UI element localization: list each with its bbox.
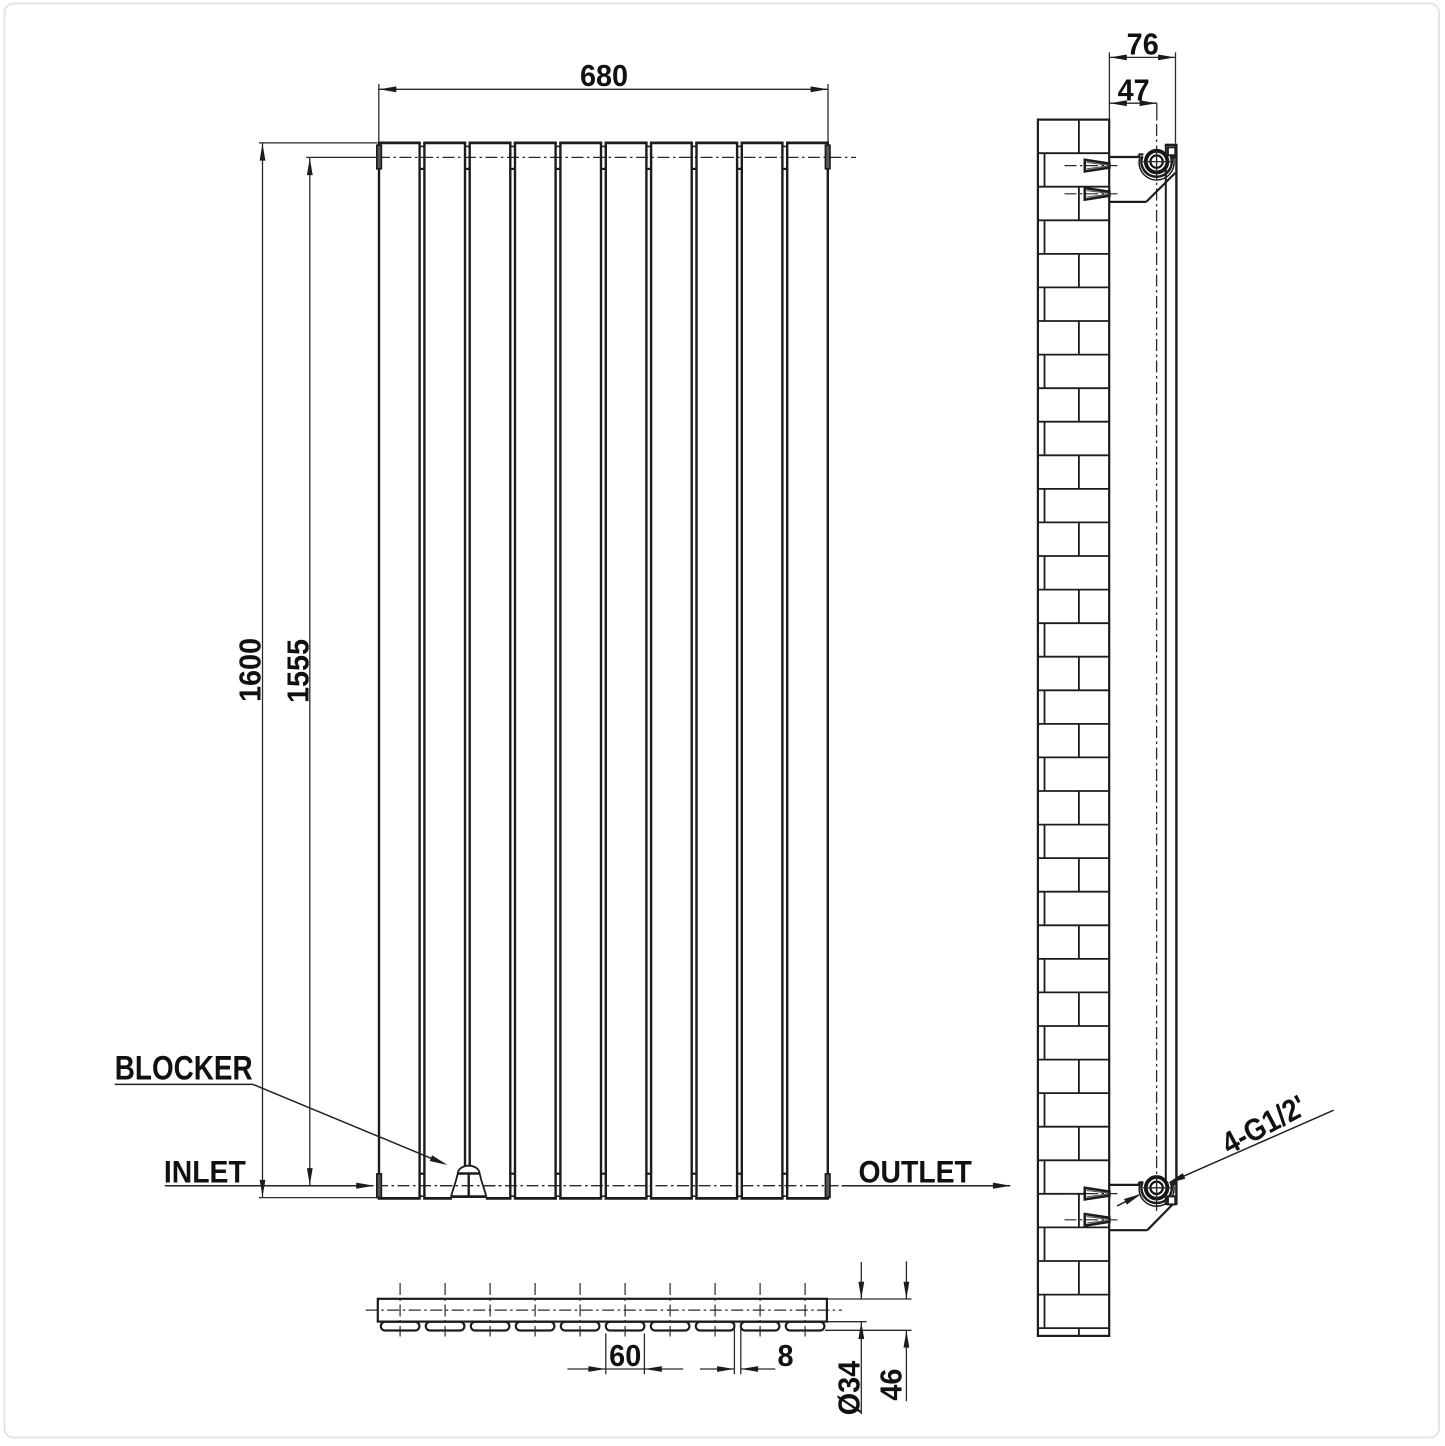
svg-text:60: 60 xyxy=(609,1339,641,1373)
svg-text:INLET: INLET xyxy=(164,1155,246,1190)
svg-text:1600: 1600 xyxy=(233,638,267,702)
svg-text:1555: 1555 xyxy=(282,639,316,703)
svg-text:Ø34: Ø34 xyxy=(832,1360,866,1415)
svg-text:4-G1/2': 4-G1/2' xyxy=(1217,1089,1312,1161)
svg-text:76: 76 xyxy=(1127,28,1159,62)
svg-text:OUTLET: OUTLET xyxy=(859,1155,972,1190)
svg-text:680: 680 xyxy=(580,59,628,93)
svg-text:8: 8 xyxy=(777,1339,793,1373)
svg-text:46: 46 xyxy=(875,1369,909,1401)
svg-text:BLOCKER: BLOCKER xyxy=(115,1049,253,1087)
svg-text:47: 47 xyxy=(1118,73,1150,107)
